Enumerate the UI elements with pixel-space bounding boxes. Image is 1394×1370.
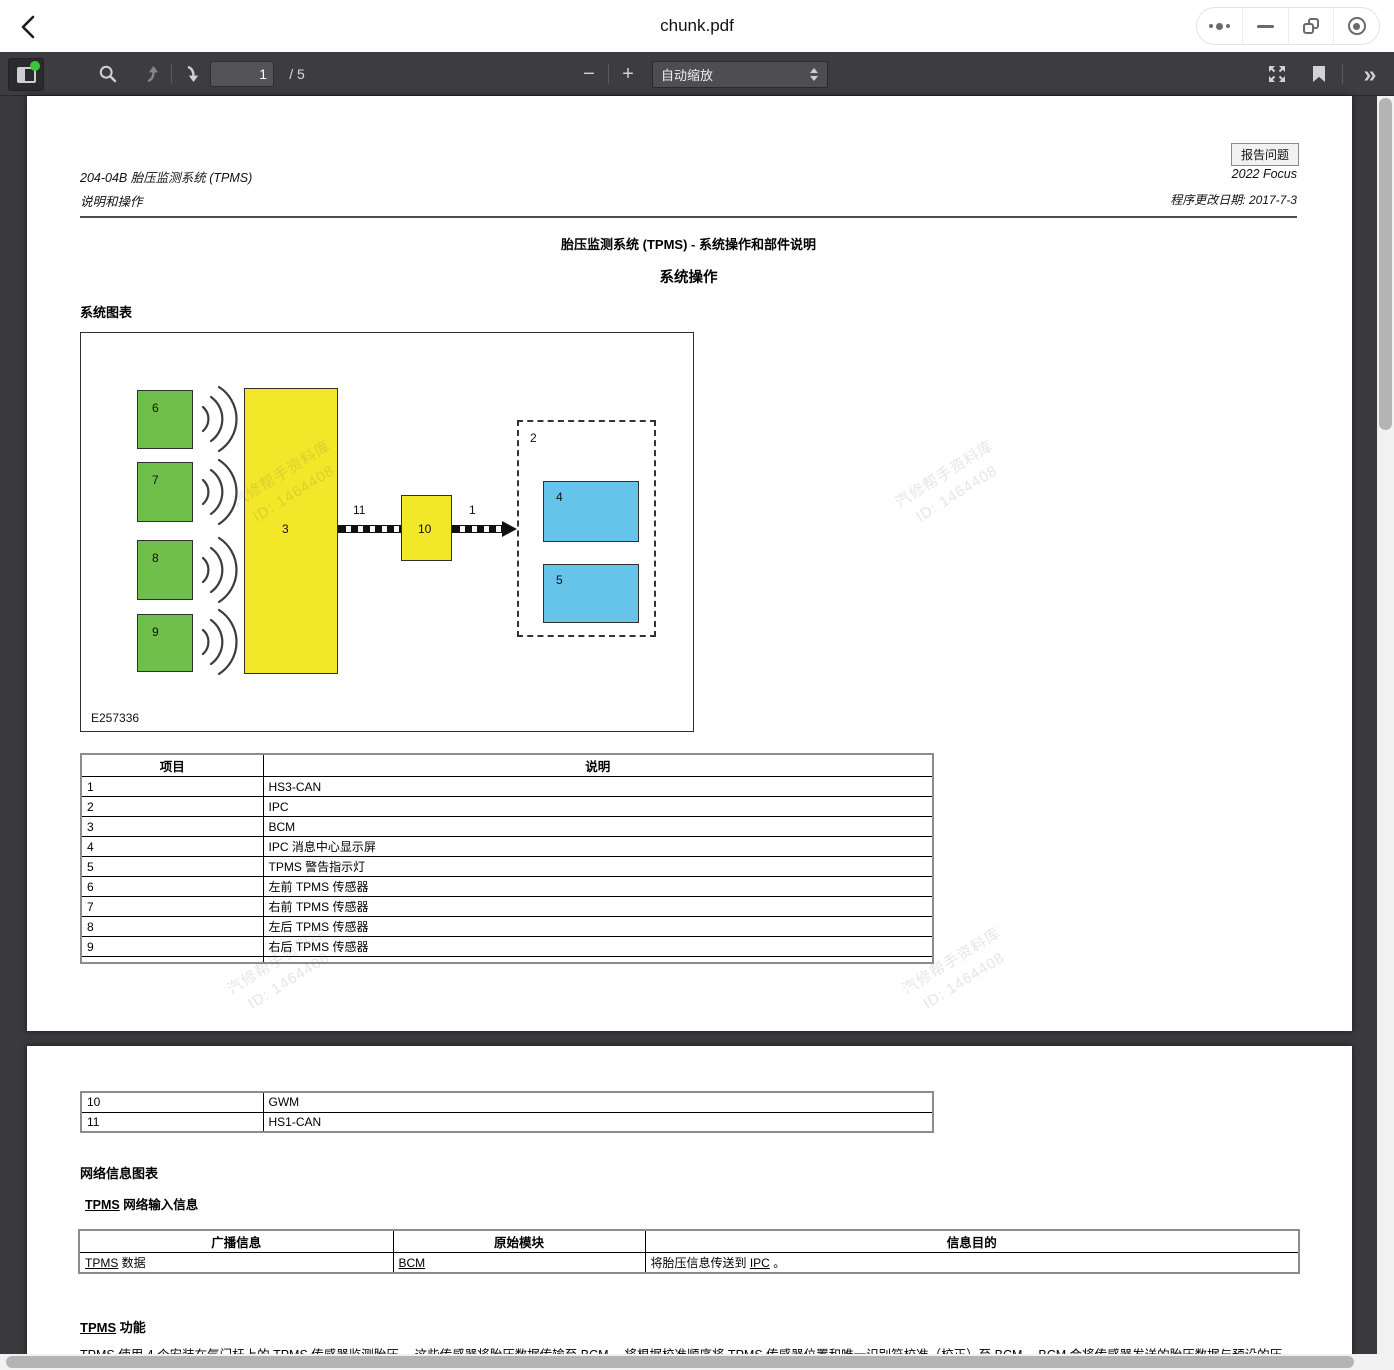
zoom-scale-value: 自动缩放 [661, 65, 713, 84]
rf-signal-icon [195, 530, 239, 610]
viewer-container: 204-04B 胎压监测系统 (TPMS) 说明和操作 报告问题 2022 Fo… [0, 96, 1394, 1370]
document-title: chunk.pdf [0, 0, 1394, 52]
table-row: 8左后 TPMS 传感器 [81, 917, 933, 937]
next-page-button[interactable] [176, 52, 204, 96]
more-options-button[interactable] [1197, 8, 1242, 44]
doc-sub-line: 说明和操作 [80, 191, 143, 210]
toggle-sidebar-button[interactable] [8, 58, 44, 91]
presentation-mode-button[interactable] [1263, 52, 1291, 96]
diagram-box-message-center: 4 [543, 481, 639, 542]
minimize-button[interactable] [1242, 8, 1288, 44]
rf-signal-icon [195, 452, 239, 532]
table-row: 4IPC 消息中心显示屏 [81, 837, 933, 857]
diagram-box-sensor-lf: 6 [137, 390, 193, 449]
col-header-origin-module: 原始模块 [393, 1230, 645, 1253]
close-button[interactable] [1333, 8, 1379, 44]
page-count-label: / 5 [280, 52, 314, 96]
titlebar: chunk.pdf [0, 0, 1394, 52]
diagram-box-sensor-rf: 7 [137, 462, 193, 522]
pdf-page-1: 204-04B 胎压监测系统 (TPMS) 说明和操作 报告问题 2022 Fo… [27, 96, 1352, 1031]
toolbar-divider [1342, 64, 1343, 84]
tpms-link[interactable]: TPMS [80, 1320, 116, 1335]
toolbar-divider [171, 64, 172, 84]
pdf-viewer-app: chunk.pdf [0, 0, 1394, 1370]
table-row: 2IPC [81, 797, 933, 817]
minimize-icon [1257, 25, 1274, 28]
legend-table-continued: 10GWM 11HS1-CAN [80, 1091, 934, 1133]
change-date-label: 程序更改日期: 2017-7-3 [1170, 191, 1297, 208]
tpms-data-link[interactable]: TPMS [85, 1256, 118, 1270]
legend-table: 项目 说明 1HS3-CAN 2IPC 3BCM 4IPC 消息中心显示屏 5T… [80, 753, 934, 964]
diagram-label-1: 1 [469, 503, 476, 517]
window-capsule [1196, 7, 1380, 45]
header-rule [80, 216, 1297, 218]
diagram-box-ipc: 2 4 5 [517, 420, 656, 637]
fullscreen-icon [1267, 64, 1287, 84]
vertical-scrollbar-thumb[interactable] [1379, 98, 1392, 430]
sidebar-notification-dot [30, 61, 40, 71]
diagram-arrowhead [502, 521, 517, 537]
previous-page-button[interactable] [136, 52, 164, 96]
table-row: 9右后 TPMS 传感器 [81, 937, 933, 957]
select-spinner-icon [810, 68, 818, 81]
ipc-link[interactable]: IPC [750, 1256, 770, 1270]
table-row: 3BCM [81, 817, 933, 837]
restore-icon [1303, 18, 1319, 34]
section-heading-system-diagram: 系统图表 [80, 302, 132, 321]
page-number-input[interactable] [210, 61, 274, 87]
diagram-box-sensor-rr: 9 [137, 614, 193, 672]
pdf-toolbar: / 5 − + 自动缩放 » [0, 52, 1394, 96]
col-header-item: 项目 [81, 754, 263, 777]
diagram-box-tpms-warning-lamp: 5 [543, 564, 639, 623]
diagram-box-sensor-lr: 8 [137, 540, 193, 600]
horizontal-scrollbar-thumb[interactable] [6, 1356, 1354, 1368]
doc-code-line: 204-04B 胎压监测系统 (TPMS) [80, 167, 252, 186]
table-row: 5TPMS 警告指示灯 [81, 857, 933, 877]
rf-signal-icon [195, 379, 239, 459]
table-row: TPMS 数据 BCM 将胎压信息传送到 IPC 。 [79, 1253, 1299, 1274]
model-year-label: 2022 Focus [1232, 167, 1297, 181]
target-close-icon [1348, 17, 1366, 35]
table-row: 11HS1-CAN [81, 1112, 933, 1132]
page-title: 胎压监测系统 (TPMS) - 系统操作和部件说明 [80, 234, 1297, 253]
diagram-bus-hs1can [338, 525, 402, 533]
col-header-broadcast-message: 广播信息 [79, 1230, 393, 1253]
diagram-box-bcm: 3 [244, 388, 338, 674]
diagram-box-gwm: 10 [401, 495, 452, 561]
system-diagram: 6 7 8 9 [80, 332, 694, 732]
bookmark-button[interactable] [1305, 52, 1333, 96]
section-heading-tpms-function: TPMS 功能 [80, 1317, 146, 1336]
report-problem-button[interactable]: 报告问题 [1231, 143, 1299, 166]
bcm-link[interactable]: BCM [399, 1256, 426, 1270]
zoom-in-button[interactable]: + [615, 52, 641, 96]
diagram-bus-hs3can [452, 525, 504, 533]
more-tools-button[interactable]: » [1352, 52, 1388, 96]
diagram-label-11: 11 [353, 503, 365, 517]
legend-table-wrapper: 项目 说明 1HS3-CAN 2IPC 3BCM 4IPC 消息中心显示屏 5T… [80, 753, 936, 988]
table-row: 1HS3-CAN [81, 777, 933, 797]
col-header-message-purpose: 信息目的 [645, 1230, 1299, 1253]
table-row: 10GWM [81, 1092, 933, 1112]
toolbar-divider [608, 64, 609, 84]
zoom-out-button[interactable]: − [576, 52, 602, 96]
bookmark-icon [1313, 66, 1325, 82]
table-row-partial [81, 957, 933, 963]
network-message-table: 广播信息 原始模块 信息目的 TPMS 数据 BCM 将胎压信息传送到 IPC … [78, 1229, 1300, 1274]
col-header-description: 说明 [263, 754, 933, 777]
subheading-tpms-network-input: TPMS 网络输入信息 [85, 1194, 198, 1213]
page-subtitle: 系统操作 [80, 266, 1297, 287]
page-down-icon [179, 63, 201, 85]
diagram-figure-code: E257336 [91, 711, 139, 725]
vertical-scrollbar[interactable] [1377, 96, 1394, 1370]
restore-window-button[interactable] [1288, 8, 1334, 44]
table-row: 7右前 TPMS 传感器 [81, 897, 933, 917]
tpms-link[interactable]: TPMS [85, 1198, 120, 1212]
watermark: 汽修帮手资料库ID: 1464408 [891, 435, 1011, 534]
rf-signal-icon [195, 602, 239, 682]
search-icon [98, 64, 118, 84]
pdf-page-2: 10GWM 11HS1-CAN 网络信息图表 TPMS 网络输入信息 广播信息 … [27, 1046, 1352, 1370]
table-row: 6左前 TPMS 传感器 [81, 877, 933, 897]
search-button[interactable] [94, 52, 122, 96]
page-up-icon [139, 63, 161, 85]
horizontal-scrollbar[interactable] [0, 1354, 1377, 1370]
ellipsis-icon [1209, 23, 1230, 30]
section-heading-network-chart: 网络信息图表 [80, 1163, 158, 1182]
zoom-scale-select[interactable]: 自动缩放 [652, 61, 828, 88]
